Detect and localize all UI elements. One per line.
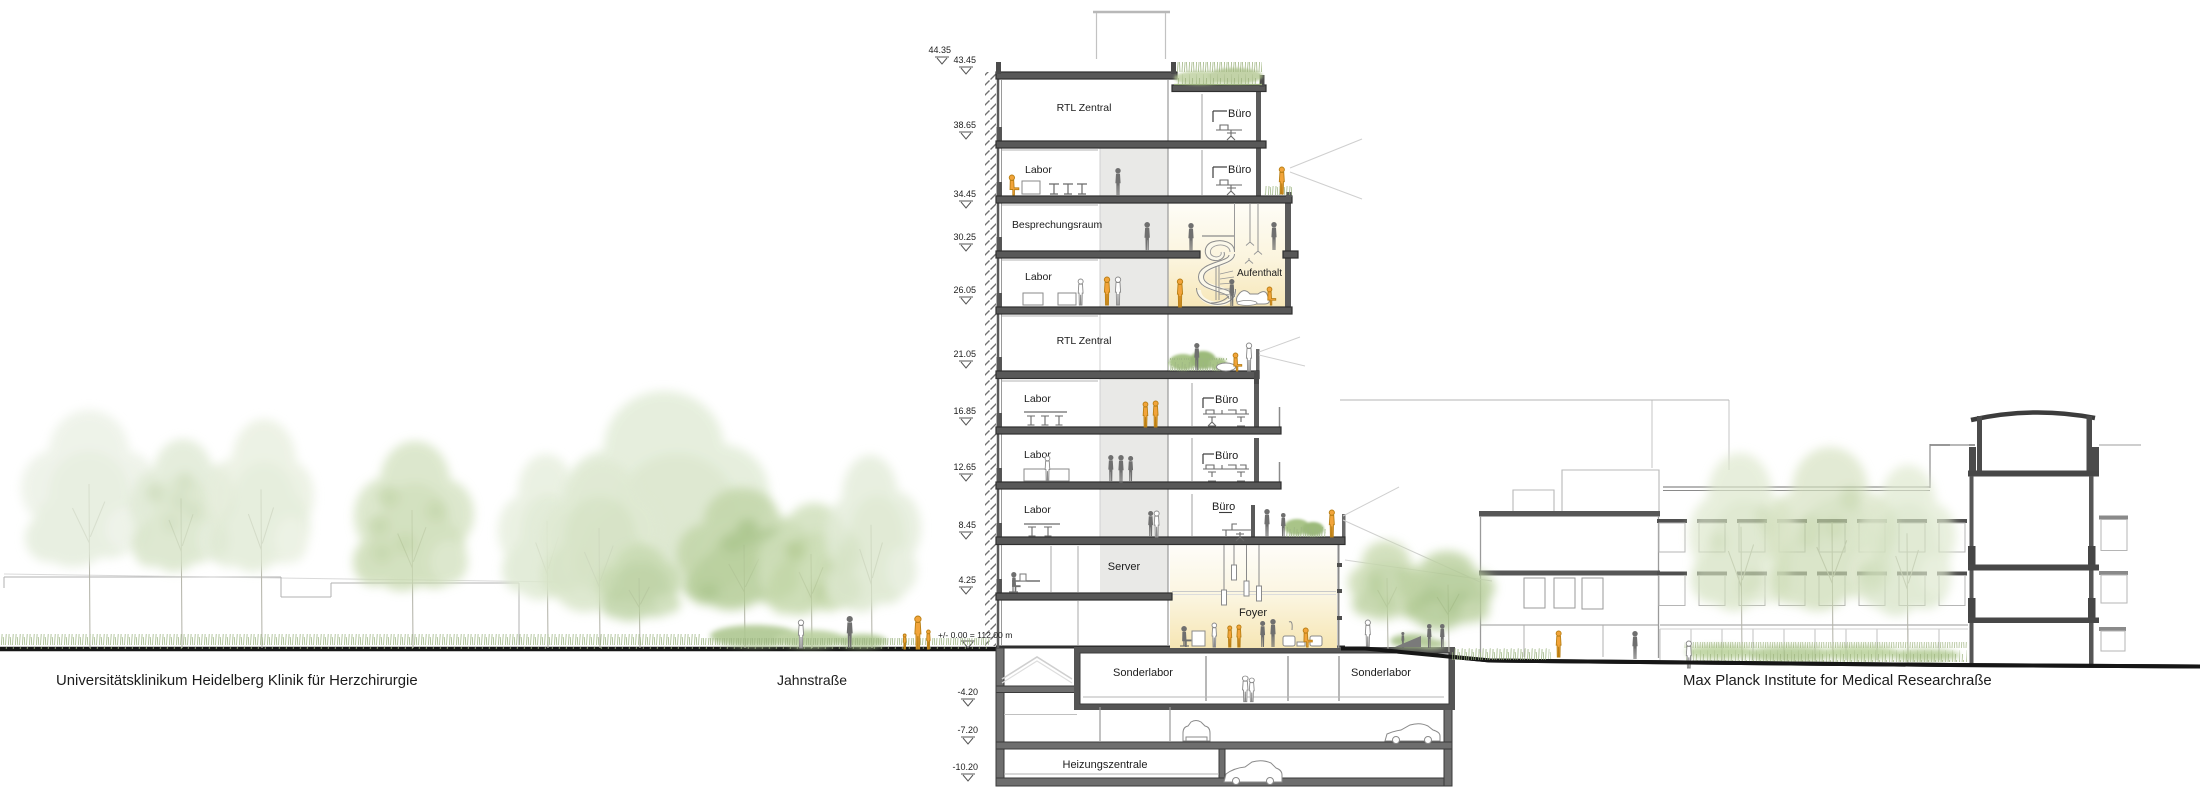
svg-text:21.05: 21.05 (953, 349, 976, 359)
svg-text:Labor: Labor (1024, 393, 1051, 405)
svg-text:Sonderlabor: Sonderlabor (1113, 667, 1173, 679)
svg-text:Foyer: Foyer (1239, 607, 1267, 619)
svg-text:4.25: 4.25 (958, 575, 976, 585)
svg-text:Büro: Büro (1228, 108, 1251, 120)
svg-text:Universitätsklinikum Heidelber: Universitätsklinikum Heidelberg Klinik f… (56, 673, 418, 689)
svg-text:Büro: Büro (1212, 501, 1235, 513)
svg-text:RTL Zentral: RTL Zentral (1057, 102, 1112, 114)
svg-text:-7.20: -7.20 (957, 725, 978, 735)
svg-text:Heizungszentrale: Heizungszentrale (1063, 759, 1148, 771)
svg-text:8.45: 8.45 (958, 520, 976, 530)
svg-text:Aufenthalt: Aufenthalt (1237, 268, 1282, 279)
svg-text:Labor: Labor (1024, 504, 1051, 516)
svg-text:38.65: 38.65 (953, 120, 976, 130)
svg-text:43.45: 43.45 (953, 55, 976, 65)
svg-text:Server: Server (1108, 561, 1141, 573)
svg-text:26.05: 26.05 (953, 285, 976, 295)
svg-text:Jahnstraße: Jahnstraße (777, 672, 847, 688)
svg-text:Labor: Labor (1025, 271, 1052, 283)
svg-text:Besprechungsraum: Besprechungsraum (1012, 220, 1102, 231)
svg-text:16.85: 16.85 (953, 406, 976, 416)
svg-text:Büro: Büro (1215, 394, 1238, 406)
svg-text:-10.20: -10.20 (952, 762, 978, 772)
svg-text:-4.20: -4.20 (957, 687, 978, 697)
svg-text:Labor: Labor (1025, 164, 1052, 176)
svg-text:30.25: 30.25 (953, 232, 976, 242)
svg-text:44.35: 44.35 (928, 45, 951, 55)
svg-text:Büro: Büro (1228, 164, 1251, 176)
svg-text:Sonderlabor: Sonderlabor (1351, 667, 1411, 679)
svg-text:Büro: Büro (1215, 450, 1238, 462)
svg-text:Max Planck Institute for Medic: Max Planck Institute for Medical Researc… (1683, 673, 1992, 689)
svg-text:12.65: 12.65 (953, 462, 976, 472)
svg-text:RTL Zentral: RTL Zentral (1057, 335, 1112, 347)
svg-text:34.45: 34.45 (953, 189, 976, 199)
